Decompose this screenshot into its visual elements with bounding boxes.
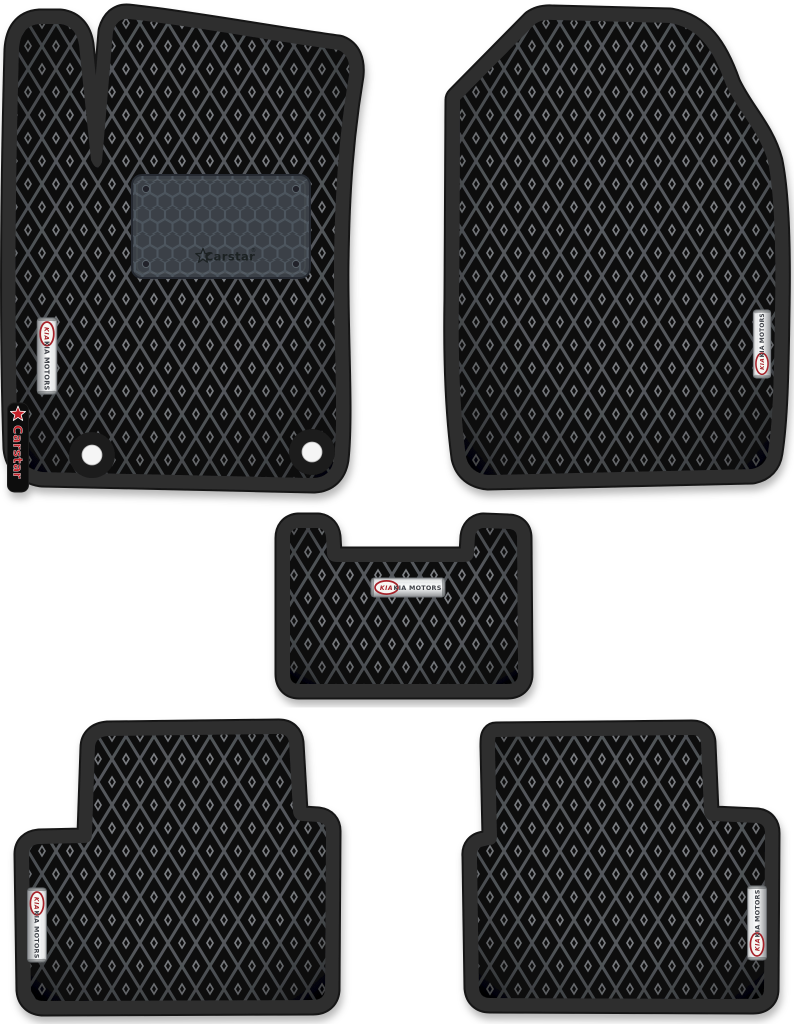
kia-badge-rear-left-mat — [28, 888, 47, 962]
carstar-heel-logo: Carstar ® — [196, 247, 256, 264]
driver-mat: Carstar ® Carstar — [8, 19, 350, 492]
floor-mat-set-illustration: KIA KIA MOTORS Carstar ® — [0, 0, 794, 1024]
registered-mark: ® — [251, 247, 256, 254]
heel-pad: Carstar ® — [132, 175, 310, 278]
tunnel-mat — [290, 528, 518, 684]
kia-badge-tunnel-mat — [371, 578, 445, 597]
mat-fastener-left — [69, 432, 115, 478]
rear-right-mat — [477, 735, 767, 999]
kia-badge-rear-right-mat — [748, 886, 767, 960]
carstar-side-label: Carstar — [8, 403, 29, 492]
front-passenger-mat — [459, 20, 776, 475]
heel-pad-logo-text: Carstar — [205, 250, 255, 264]
kia-badge-passenger-mat — [753, 310, 770, 378]
kia-badge-driver-mat — [37, 318, 57, 394]
rear-left-mat — [28, 734, 327, 1001]
mat-fastener-right — [289, 429, 335, 475]
side-label-text: Carstar — [11, 425, 26, 479]
product-photo-floor-mats: KIA KIA MOTORS Carstar ® — [0, 0, 794, 1024]
